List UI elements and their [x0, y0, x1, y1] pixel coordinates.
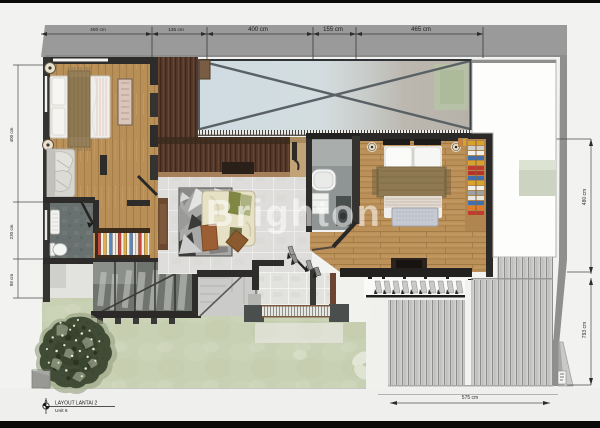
svg-text:Unit 6: Unit 6: [55, 408, 68, 414]
svg-text:155 cm: 155 cm: [323, 27, 343, 33]
svg-text:LAYOUT LANTAI 2: LAYOUT LANTAI 2: [55, 401, 97, 407]
svg-text:Brighton: Brighton: [206, 193, 382, 235]
svg-text:400 cm: 400 cm: [248, 27, 268, 33]
svg-text:465 cm: 465 cm: [411, 27, 431, 33]
svg-text:135 cm: 135 cm: [168, 27, 184, 33]
svg-text:480 cm: 480 cm: [582, 189, 588, 205]
svg-text:230 cm: 230 cm: [9, 224, 14, 239]
svg-text:88 cm: 88 cm: [9, 274, 14, 287]
svg-text:575 cm: 575 cm: [462, 395, 478, 401]
svg-text:400 cm: 400 cm: [9, 127, 14, 142]
svg-text:400 cm: 400 cm: [90, 27, 106, 33]
svg-text:793 cm: 793 cm: [582, 322, 588, 338]
